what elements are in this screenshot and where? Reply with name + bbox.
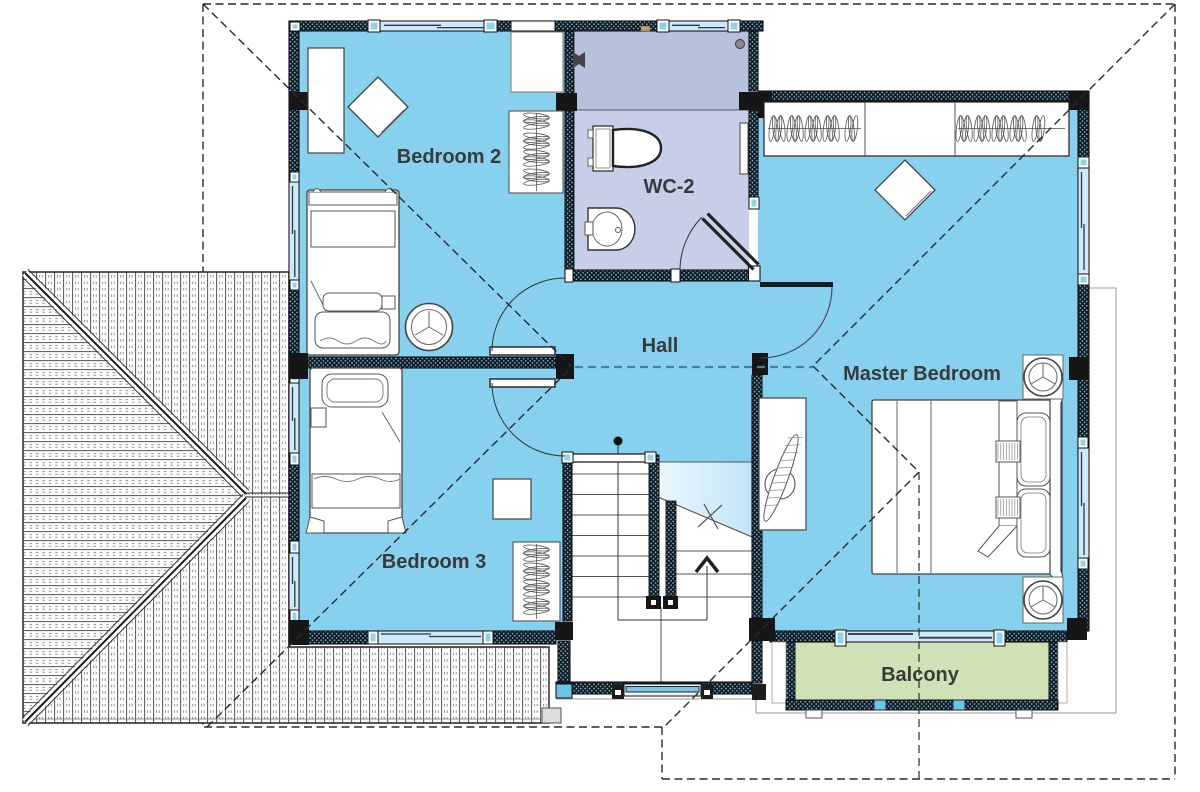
svg-text:Hall: Hall xyxy=(642,335,679,357)
svg-text:Master Bedroom: Master Bedroom xyxy=(843,363,1001,385)
svg-text:Bedroom 3: Bedroom 3 xyxy=(382,551,486,573)
svg-text:Bedroom 2: Bedroom 2 xyxy=(397,146,501,168)
svg-text:WC-2: WC-2 xyxy=(643,176,694,198)
svg-text:Balcony: Balcony xyxy=(881,664,960,686)
